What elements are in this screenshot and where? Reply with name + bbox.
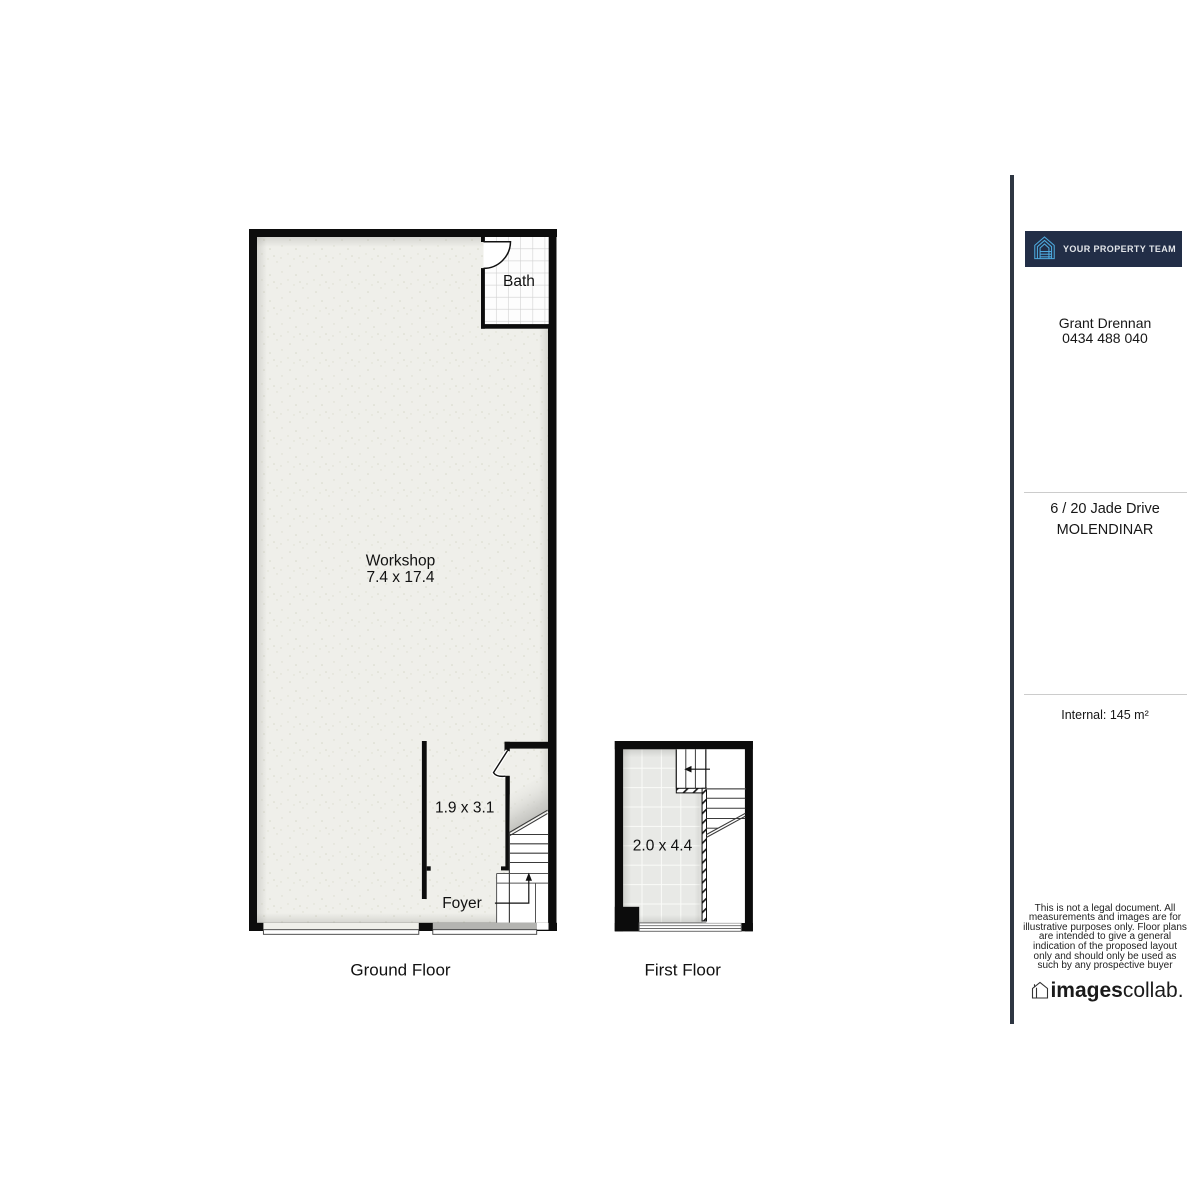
svg-text:Foyer: Foyer <box>442 895 482 912</box>
svg-text:2.0 x 4.4: 2.0 x 4.4 <box>633 838 693 855</box>
svg-text:Ground Floor: Ground Floor <box>350 961 450 980</box>
svg-text:7.4 x 17.4: 7.4 x 17.4 <box>366 569 434 586</box>
svg-text:Bath: Bath <box>503 273 535 290</box>
svg-text:1.9 x 3.1: 1.9 x 3.1 <box>435 800 494 817</box>
svg-text:Workshop: Workshop <box>366 553 436 570</box>
svg-text:First Floor: First Floor <box>644 961 721 980</box>
